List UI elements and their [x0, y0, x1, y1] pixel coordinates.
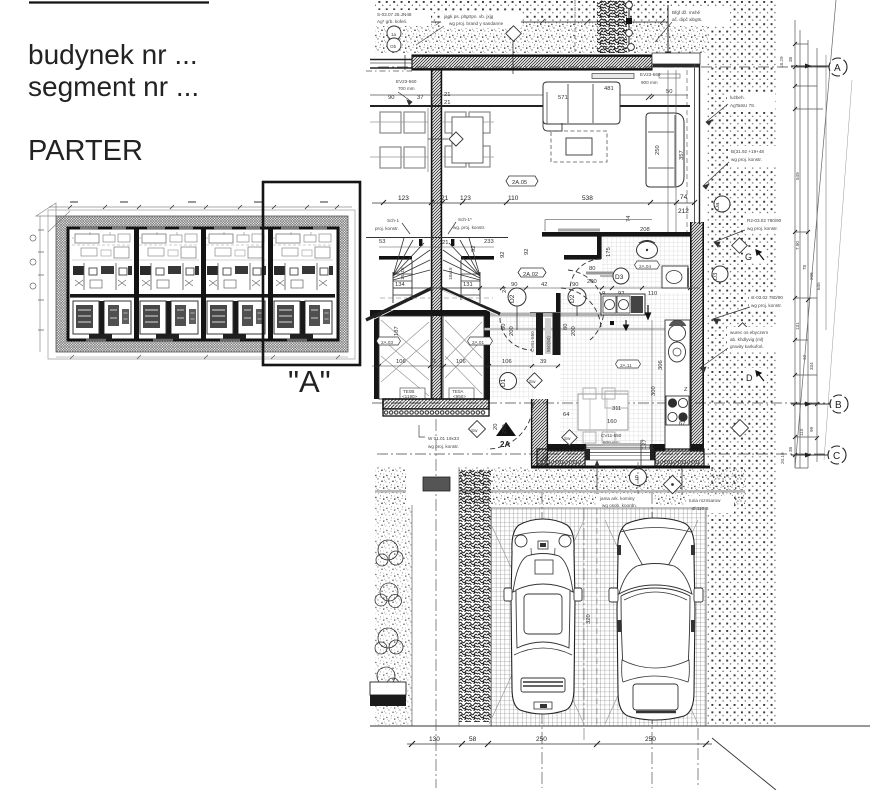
- svg-text:700 mm: 700 mm: [398, 86, 415, 91]
- svg-text:50: 50: [666, 89, 672, 95]
- svg-text:123: 123: [398, 195, 409, 202]
- svg-text:CV81-550: CV81-550: [530, 331, 535, 352]
- svg-text:18x18: 18x18: [400, 267, 405, 280]
- svg-text:jągk ps. pltgrtpn. vb. jxjg: jągk ps. pltgrtpn. vb. jxjg: [443, 14, 494, 19]
- svg-text:90: 90: [511, 282, 517, 288]
- svg-text:311: 311: [612, 406, 621, 412]
- svg-text:39: 39: [540, 359, 546, 365]
- svg-text:B: B: [835, 400, 842, 411]
- svg-text:90: 90: [572, 282, 578, 288]
- svg-text:67: 67: [679, 421, 685, 427]
- svg-text:481: 481: [604, 86, 614, 92]
- svg-text:2A.04: 2A.04: [639, 264, 651, 269]
- svg-text:2A.01: 2A.01: [472, 340, 484, 345]
- svg-text:B(31.92 +19+48: B(31.92 +19+48: [731, 149, 764, 154]
- svg-text:D2: D2: [509, 294, 516, 303]
- svg-text:357: 357: [679, 150, 685, 160]
- svg-text:92: 92: [500, 252, 506, 258]
- svg-text:Sw: Sw: [471, 428, 478, 433]
- svg-text:78: 78: [802, 264, 807, 270]
- svg-text:306: 306: [658, 360, 664, 370]
- svg-text:64: 64: [563, 412, 570, 418]
- svg-text:160: 160: [607, 419, 617, 425]
- svg-text:21: 21: [441, 195, 449, 202]
- svg-text:2A.05: 2A.05: [512, 180, 527, 186]
- svg-text:212: 212: [678, 208, 689, 215]
- svg-text:G: G: [745, 252, 752, 262]
- svg-text:S-03.07 25.JN48: S-03.07 25.JN48: [377, 12, 412, 17]
- svg-text:C: C: [833, 451, 840, 462]
- svg-text:wg proj. konstr.: wg proj. konstr.: [747, 226, 778, 231]
- svg-text:Ob: Ob: [390, 44, 397, 49]
- svg-text:53: 53: [379, 239, 385, 245]
- svg-text:12: 12: [802, 354, 807, 360]
- svg-text:21: 21: [442, 240, 448, 246]
- svg-text:233: 233: [484, 239, 494, 245]
- svg-text:turia rozmiarow: turia rozmiarow: [689, 498, 721, 503]
- svg-text:106: 106: [396, 359, 406, 365]
- svg-text:42: 42: [541, 282, 547, 288]
- svg-text:74: 74: [626, 215, 632, 222]
- svg-text:Ag* grb. kofeń.: Ag* grb. kofeń.: [377, 19, 407, 24]
- svg-text:200: 200: [509, 326, 515, 336]
- svg-text:250: 250: [502, 424, 508, 434]
- svg-text:208: 208: [640, 227, 650, 233]
- svg-text:"A": "A": [288, 364, 331, 399]
- svg-text:21: 21: [444, 92, 450, 98]
- svg-text:92: 92: [471, 246, 477, 252]
- svg-text:21: 21: [430, 359, 436, 365]
- svg-text:Sw: Sw: [564, 436, 571, 441]
- svg-text:D3: D3: [615, 274, 624, 281]
- svg-text:200: 200: [587, 279, 597, 285]
- svg-text:80: 80: [563, 324, 569, 330]
- svg-text:20: 20: [493, 424, 499, 430]
- svg-text:538: 538: [582, 195, 593, 202]
- svg-text:Sw: Sw: [529, 379, 536, 384]
- svg-text:CV11-550: CV11-550: [601, 433, 622, 438]
- svg-text:127: 127: [642, 439, 648, 449]
- svg-text:550(50): 550(50): [546, 336, 551, 352]
- svg-text:jama ark. kominy: jama ark. kominy: [599, 496, 635, 501]
- svg-text:334: 334: [809, 362, 814, 370]
- svg-text:58: 58: [469, 736, 477, 743]
- svg-text:Da: Da: [715, 202, 721, 210]
- svg-text:D: D: [746, 373, 753, 383]
- svg-text:250: 250: [536, 736, 547, 743]
- svg-text:90: 90: [388, 95, 394, 101]
- svg-text:A: A: [834, 63, 841, 74]
- svg-text:320: 320: [586, 614, 592, 624]
- svg-text:131: 131: [463, 282, 473, 288]
- svg-text:7.90: 7.90: [795, 241, 800, 250]
- svg-text:R2-03.02 780/90: R2-03.02 780/90: [747, 218, 782, 223]
- svg-text:D3: D3: [713, 273, 719, 280]
- svg-text:AgTatsU 78.: AgTatsU 78.: [730, 103, 755, 108]
- svg-text:st-03.02 780/90: st-03.02 780/90: [751, 295, 783, 300]
- svg-text:EV23-560: EV23-560: [640, 72, 661, 77]
- svg-text:38: 38: [788, 446, 793, 452]
- svg-text:gravity karkufoń.: gravity karkufoń.: [730, 344, 764, 349]
- svg-text:2A.11: 2A.11: [620, 363, 632, 368]
- svg-text:250: 250: [655, 145, 661, 155]
- svg-text:106: 106: [502, 359, 512, 365]
- svg-text:645: 645: [816, 282, 821, 290]
- svg-text:900 mm: 900 mm: [641, 80, 658, 85]
- svg-text:segment nr ...: segment nr ...: [28, 71, 199, 102]
- svg-text:EV23-560: EV23-560: [396, 79, 417, 84]
- svg-text:37: 37: [417, 95, 423, 101]
- svg-text:549: 549: [795, 172, 800, 180]
- svg-text:lużbeh.: lużbeh.: [730, 95, 745, 100]
- svg-text:wg proj. konstr.: wg proj. konstr.: [751, 303, 782, 308]
- svg-text:110: 110: [799, 428, 804, 436]
- svg-text:wg proj. konstr.: wg proj. konstr.: [731, 157, 762, 162]
- svg-text:2A: 2A: [500, 440, 510, 449]
- svg-text:D2: D2: [569, 294, 576, 303]
- svg-text:18x18: 18x18: [448, 267, 453, 280]
- svg-text:175: 175: [606, 247, 612, 257]
- svg-text:Sch-1*: Sch-1*: [458, 217, 472, 222]
- svg-text:Sch-1: Sch-1: [387, 218, 399, 223]
- svg-text:130: 130: [429, 736, 440, 743]
- svg-text:2A.02: 2A.02: [523, 272, 538, 278]
- svg-text:99: 99: [809, 426, 814, 432]
- svg-text:187: 187: [394, 326, 400, 336]
- svg-text:571: 571: [558, 95, 568, 101]
- svg-text:W 01.01 19x33: W 01.01 19x33: [428, 436, 459, 441]
- svg-text:21: 21: [444, 100, 450, 106]
- svg-text:80: 80: [589, 266, 595, 272]
- svg-text:Z: Z: [684, 387, 688, 393]
- svg-text:proj. konstr.: proj. konstr.: [375, 226, 399, 231]
- svg-text:1a: 1a: [391, 32, 397, 37]
- svg-text:wurec os ebyczem: wurec os ebyczem: [730, 330, 768, 335]
- svg-text:wg proj. brand y sandanne: wg proj. brand y sandanne: [449, 21, 504, 26]
- svg-text:18.29: 18.29: [779, 56, 784, 68]
- svg-text:budynek nr ...: budynek nr ...: [28, 39, 198, 70]
- svg-text:200: 200: [571, 326, 577, 336]
- svg-text:wg osob. koordn.: wg osob. koordn.: [602, 503, 637, 508]
- svg-text:5: 5: [635, 475, 639, 482]
- svg-text:206: 206: [809, 272, 814, 280]
- svg-text:D1: D1: [500, 378, 507, 387]
- svg-text:92: 92: [524, 249, 530, 255]
- svg-text:wg. proj. konstr.: wg. proj. konstr.: [453, 225, 485, 230]
- svg-text:20.19: 20.19: [780, 452, 785, 464]
- svg-text:110: 110: [508, 195, 519, 202]
- svg-text:2A.03: 2A.03: [381, 340, 393, 345]
- svg-text:123: 123: [460, 195, 471, 202]
- svg-text:106: 106: [456, 359, 466, 365]
- svg-text:74: 74: [680, 194, 688, 201]
- svg-text:131: 131: [795, 322, 800, 330]
- svg-text:38: 38: [788, 56, 793, 62]
- svg-text:PARTER: PARTER: [28, 135, 143, 167]
- svg-text:wg proj. konstr.: wg proj. konstr.: [428, 444, 459, 449]
- svg-text:Bfgf dž. mshě: Bfgf dž. mshě: [672, 10, 701, 15]
- svg-text:134: 134: [395, 282, 405, 288]
- svg-text:ač. dipč xibgts.: ač. dipč xibgts.: [672, 17, 702, 22]
- svg-text:110: 110: [648, 291, 657, 297]
- svg-text:ab. khdlyvig (ml): ab. khdlyvig (ml): [730, 337, 764, 342]
- svg-text:250: 250: [645, 736, 656, 743]
